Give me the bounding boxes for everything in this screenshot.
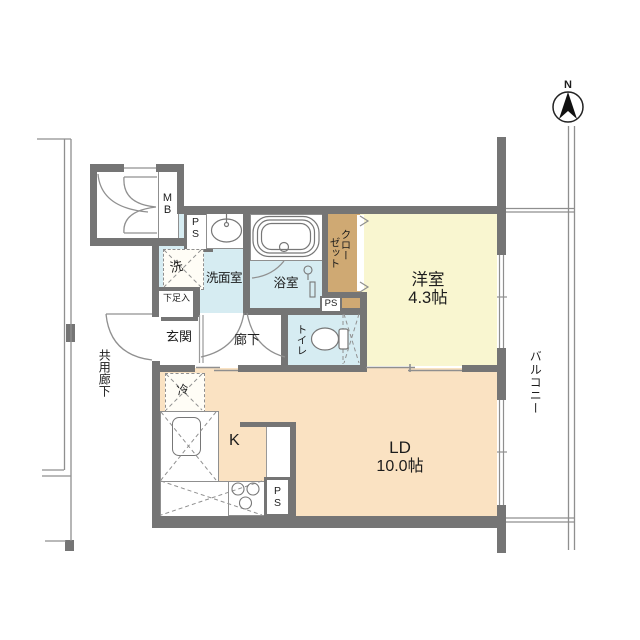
- wall: [177, 164, 184, 212]
- shoe-cabinet-label: 下足入: [160, 294, 193, 304]
- toilet-label: トイレ: [295, 324, 307, 356]
- living-dining-window: [497, 400, 506, 505]
- washroom-label: 洗面室: [203, 272, 245, 286]
- wall: [360, 292, 367, 372]
- wall: [238, 365, 366, 372]
- closet-label-col2: ゼット: [328, 237, 340, 269]
- entrance-label: 玄関: [164, 330, 194, 344]
- wall: [243, 308, 360, 315]
- wall: [90, 238, 184, 246]
- pipe-space-label-top: PS: [189, 216, 202, 240]
- stove: [228, 481, 265, 516]
- meter-box-door-arcs: [98, 168, 157, 233]
- living-dining-label: LD: [375, 439, 425, 458]
- wall: [152, 361, 160, 528]
- bathtub-box: [250, 214, 326, 261]
- north-compass-icon: [553, 92, 583, 122]
- meter-box-label: MB: [160, 192, 175, 216]
- corridor-pillar: [66, 324, 75, 342]
- wall: [90, 164, 97, 246]
- balcony-label: バルコニー: [528, 350, 541, 415]
- kitchen-shaft-column: [266, 427, 291, 477]
- entrance-door-arc: [106, 314, 152, 360]
- wall: [152, 365, 195, 372]
- pipe-space-label-closet: PS: [320, 299, 342, 309]
- corridor-pillar: [65, 540, 74, 551]
- compass-north-label: N: [561, 79, 575, 91]
- kitchen-label: K: [229, 432, 240, 450]
- wall: [152, 516, 505, 528]
- entrance-door-opening: [151, 317, 161, 360]
- washer-label: 洗: [169, 259, 185, 276]
- balcony-lines: [506, 126, 575, 550]
- western-room-label: 洋室: [398, 271, 458, 289]
- floor-plan: N MB PS PS PS 洗面室 浴室 洗 冷 下足入 玄関 廊下 トイレ ク…: [0, 0, 640, 640]
- refrigerator-label: 冷: [176, 383, 190, 398]
- wall: [193, 287, 200, 317]
- pipe-space-label-kitchen: PS: [271, 485, 284, 509]
- hallway-label: 廊下: [233, 333, 261, 347]
- western-room-size: 4.3帖: [398, 289, 458, 307]
- closet-door-opening: [357, 215, 364, 291]
- wall: [243, 206, 250, 313]
- wall: [177, 206, 505, 214]
- closet-label-col1: クロー: [339, 229, 351, 261]
- kitchen-hanging-wall: [240, 422, 295, 427]
- wall: [281, 313, 288, 372]
- western-room-window: [497, 255, 506, 348]
- bathroom-label: 浴室: [272, 277, 300, 291]
- kitchen-sink: [172, 417, 201, 456]
- common-corridor-label: 共用廊下: [97, 349, 110, 397]
- entrance-step-line: [200, 315, 204, 363]
- living-dining-size: 10.0帖: [365, 458, 435, 476]
- wall: [152, 246, 159, 317]
